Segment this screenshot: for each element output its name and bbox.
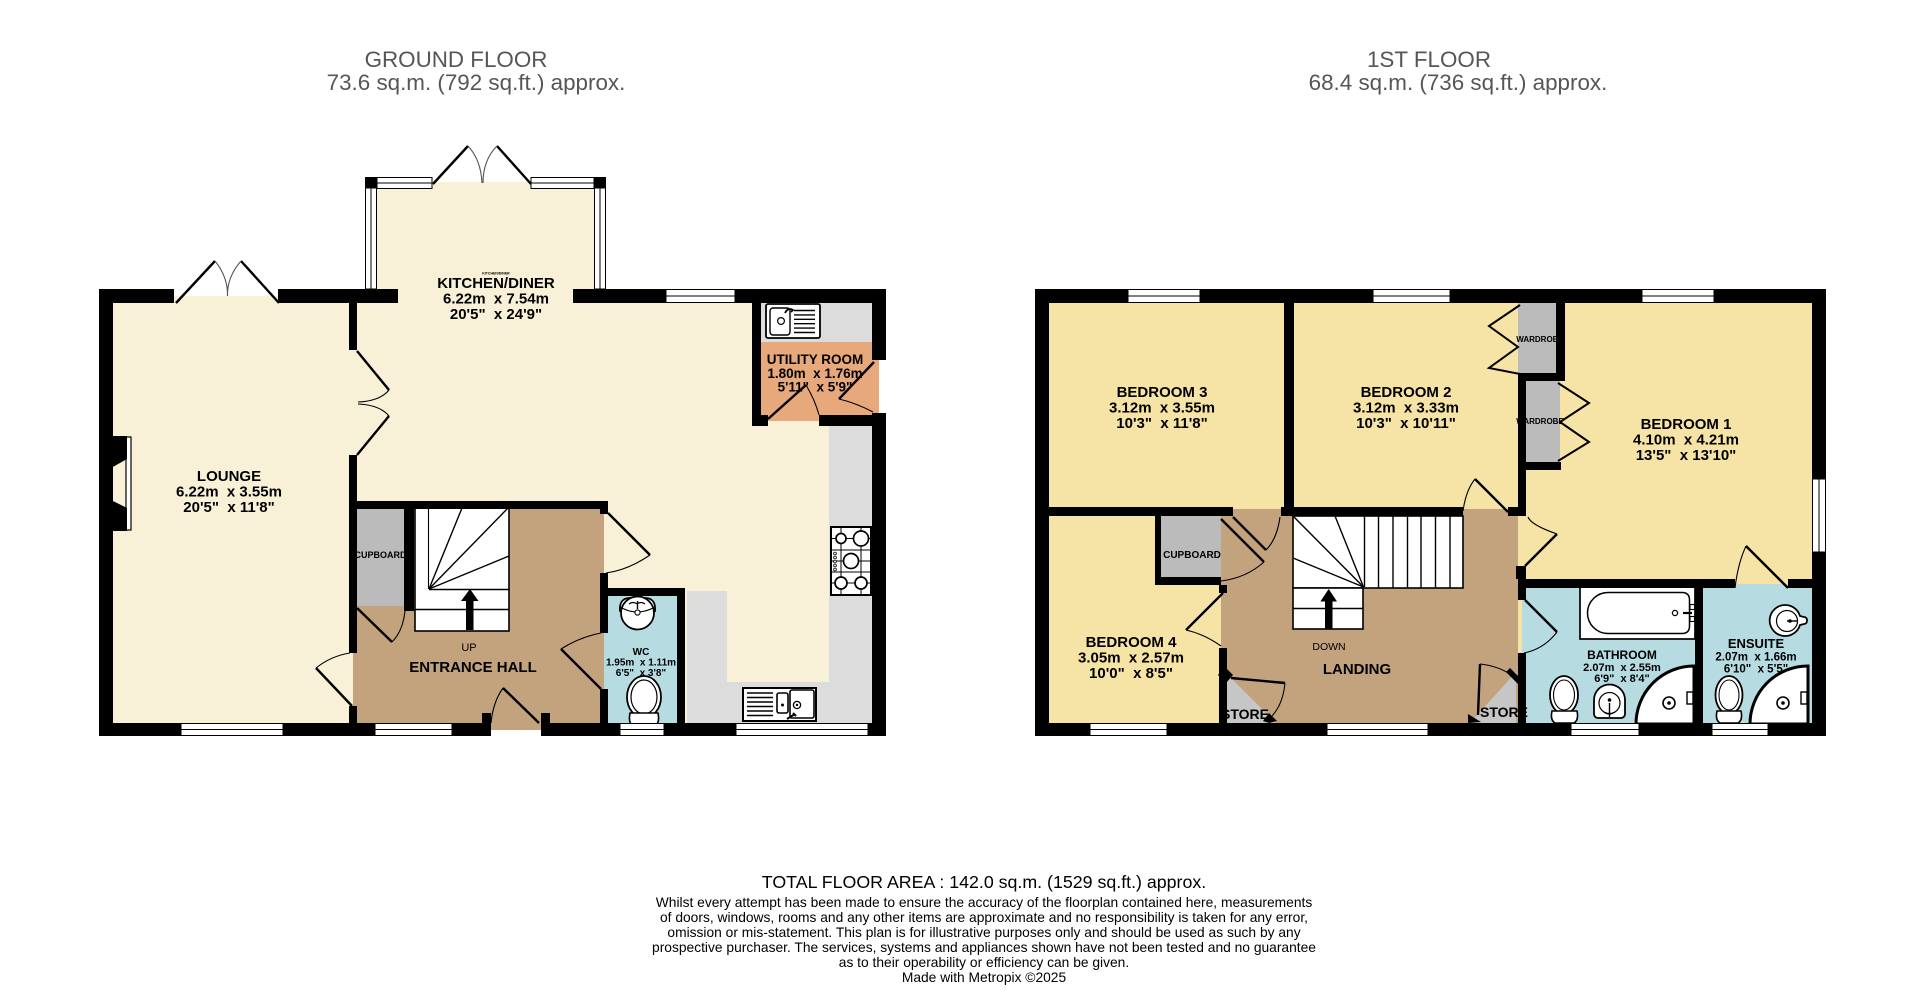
svg-text:WARDROBE: WARDROBE — [1516, 335, 1564, 344]
svg-text:BEDROOM 4: BEDROOM 4 — [1086, 634, 1178, 651]
svg-text:5'11" x 5'9": 5'11" x 5'9" — [778, 380, 853, 395]
svg-text:omission or mis-statement. Thi: omission or mis-statement. This plan is … — [667, 925, 1300, 940]
svg-text:LANDING: LANDING — [1323, 661, 1391, 678]
svg-text:UTILITY ROOM: UTILITY ROOM — [767, 352, 864, 367]
svg-text:3.12m x 3.55m: 3.12m x 3.55m — [1109, 400, 1215, 417]
svg-text:10'3" x 11'8": 10'3" x 11'8" — [1116, 415, 1207, 432]
svg-text:TOTAL FLOOR AREA : 142.0 sq.m.: TOTAL FLOOR AREA : 142.0 sq.m. (1529 sq.… — [762, 872, 1206, 892]
svg-text:CUPBOARD: CUPBOARD — [1163, 550, 1221, 561]
svg-text:73.6 sq.m. (792 sq.ft.) approx: 73.6 sq.m. (792 sq.ft.) approx. — [327, 70, 626, 95]
svg-text:Whilst every attempt has been: Whilst every attempt has been made to en… — [656, 895, 1313, 910]
svg-text:prospective purchaser. The ser: prospective purchaser. The services, sys… — [652, 940, 1316, 955]
svg-text:6.22m x 3.55m: 6.22m x 3.55m — [176, 484, 282, 501]
svg-text:13'5" x 13'10": 13'5" x 13'10" — [1636, 447, 1737, 464]
svg-text:6.22m x 7.54m: 6.22m x 7.54m — [443, 291, 549, 308]
svg-text:6'9" x 8'4": 6'9" x 8'4" — [1594, 673, 1649, 685]
svg-text:3.12m x 3.33m: 3.12m x 3.33m — [1353, 400, 1459, 417]
svg-text:68.4 sq.m. (736 sq.ft.) approx: 68.4 sq.m. (736 sq.ft.) approx. — [1309, 70, 1608, 95]
svg-text:1ST FLOOR: 1ST FLOOR — [1367, 47, 1491, 72]
svg-text:CUPBOARD: CUPBOARD — [354, 550, 407, 560]
svg-text:10'3" x 10'11": 10'3" x 10'11" — [1356, 415, 1456, 432]
svg-text:STORE: STORE — [1221, 706, 1269, 722]
svg-text:ENTRANCE HALL: ENTRANCE HALL — [409, 659, 537, 676]
svg-text:BEDROOM 1: BEDROOM 1 — [1641, 416, 1732, 433]
svg-text:KITCHEN/DINER: KITCHEN/DINER — [437, 275, 555, 292]
svg-text:UP: UP — [461, 642, 476, 654]
svg-text:2.07m x 1.66m: 2.07m x 1.66m — [1715, 652, 1796, 664]
svg-text:ENSUITE: ENSUITE — [1728, 636, 1785, 651]
svg-text:1.95m x 1.11m: 1.95m x 1.11m — [606, 658, 676, 669]
svg-text:BEDROOM 3: BEDROOM 3 — [1117, 384, 1208, 401]
svg-text:4.10m x 4.21m: 4.10m x 4.21m — [1633, 432, 1739, 449]
svg-text:Made with Metropix ©2025: Made with Metropix ©2025 — [902, 970, 1067, 985]
svg-text:LOUNGE: LOUNGE — [197, 468, 261, 485]
svg-text:20'5" x 24'9": 20'5" x 24'9" — [450, 306, 542, 323]
svg-text:BEDROOM 2: BEDROOM 2 — [1361, 384, 1452, 401]
svg-text:DOWN: DOWN — [1312, 641, 1345, 653]
svg-text:3.05m x 2.57m: 3.05m x 2.57m — [1078, 650, 1184, 667]
svg-text:of doors, windows, rooms and a: of doors, windows, rooms and any other i… — [660, 910, 1308, 925]
svg-text:as to their operability or eff: as to their operability or efficiency ca… — [839, 955, 1129, 970]
svg-text:6'5" x 3'8": 6'5" x 3'8" — [616, 668, 667, 679]
svg-text:10'0" x 8'5": 10'0" x 8'5" — [1089, 665, 1173, 682]
svg-text:20'5" x 11'8": 20'5" x 11'8" — [183, 499, 274, 516]
svg-text:WARDROBE: WARDROBE — [1516, 417, 1564, 426]
svg-text:WC: WC — [633, 647, 650, 658]
svg-text:BATHROOM: BATHROOM — [1587, 648, 1657, 662]
svg-text:GROUND FLOOR: GROUND FLOOR — [365, 47, 548, 72]
